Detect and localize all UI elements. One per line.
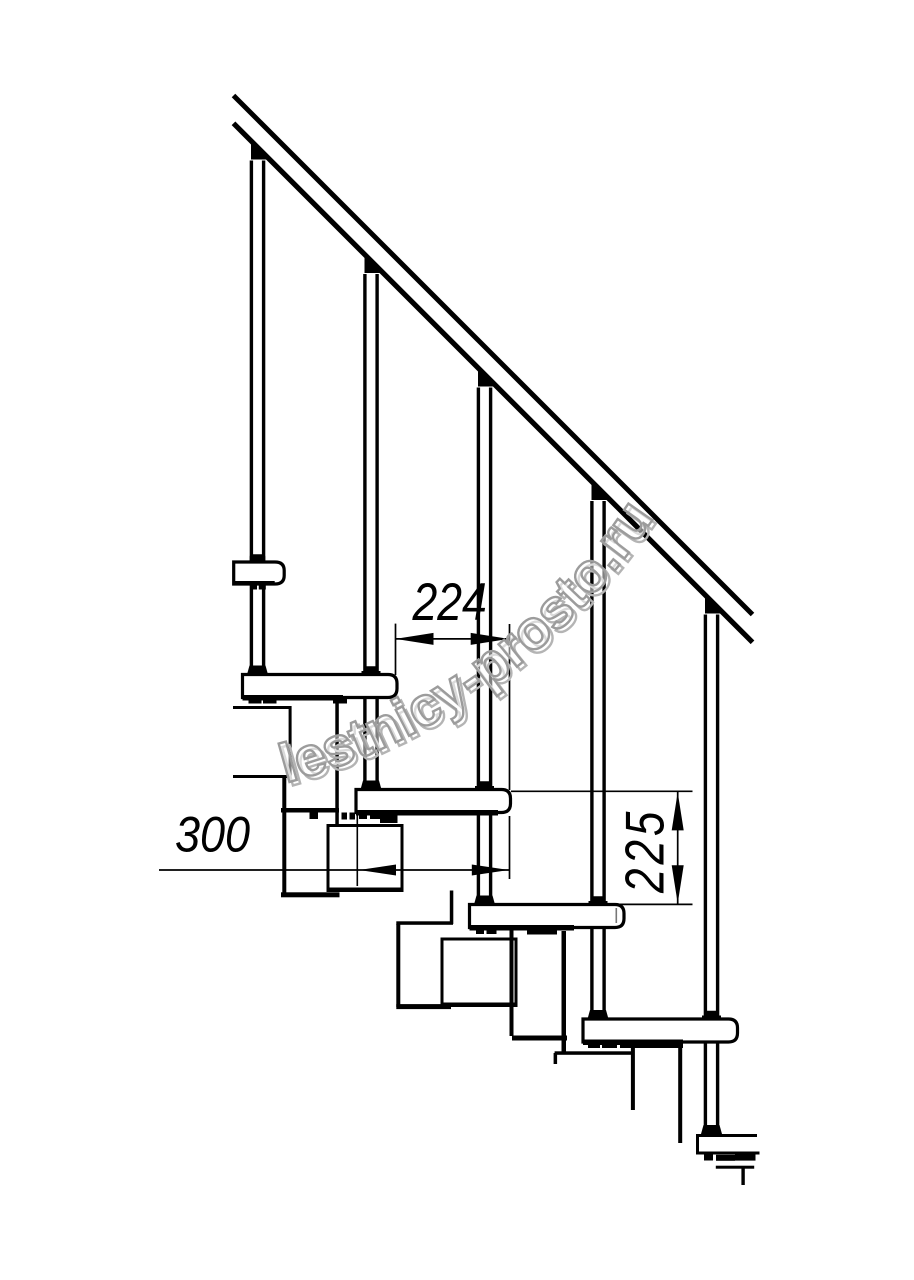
svg-text:300: 300 bbox=[175, 807, 251, 863]
svg-text:225: 225 bbox=[614, 808, 676, 894]
svg-text:224: 224 bbox=[412, 573, 487, 631]
